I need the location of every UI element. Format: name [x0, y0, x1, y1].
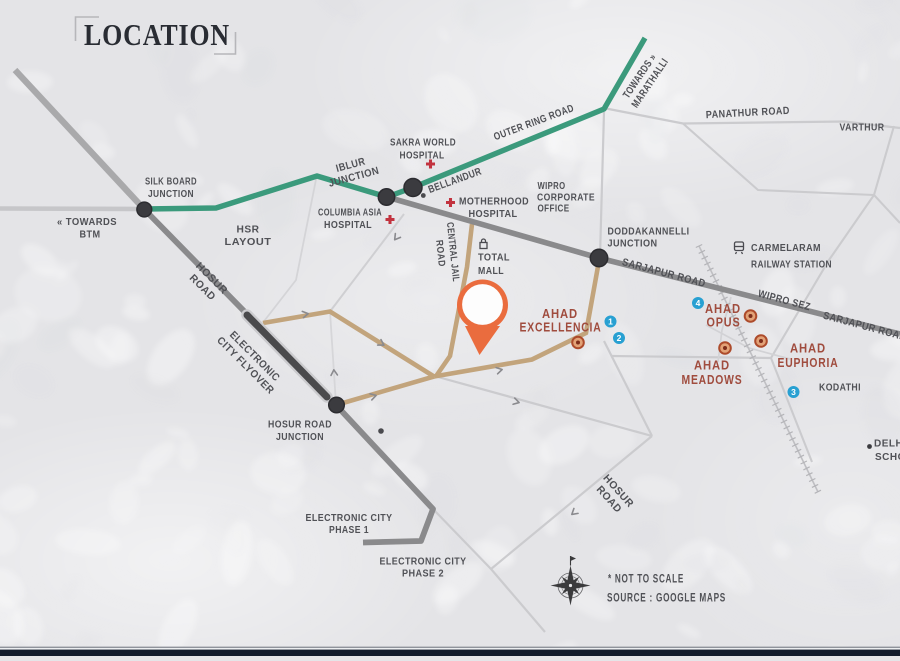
svg-text:JUNCTION: JUNCTION	[608, 238, 658, 250]
svg-text:1: 1	[608, 317, 613, 327]
svg-text:MEADOWS: MEADOWS	[682, 372, 743, 387]
svg-text:HSR: HSR	[237, 224, 260, 236]
svg-text:MALL: MALL	[478, 265, 504, 277]
svg-text:EUPHORIA: EUPHORIA	[778, 355, 839, 370]
svg-text:SAKRA WORLD: SAKRA WORLD	[390, 137, 456, 149]
svg-text:OPUS: OPUS	[707, 315, 741, 330]
svg-text:4: 4	[696, 298, 701, 308]
svg-text:3: 3	[791, 387, 796, 397]
svg-text:HOSUR ROAD: HOSUR ROAD	[268, 419, 332, 431]
svg-text:PHASE 1: PHASE 1	[329, 524, 369, 536]
svg-text:* NOT TO SCALE: * NOT TO SCALE	[608, 574, 684, 586]
svg-text:CARMELARAM: CARMELARAM	[751, 242, 821, 254]
svg-text:JUNCTION: JUNCTION	[276, 431, 324, 443]
svg-text:DELHI P: DELHI P	[874, 439, 900, 450]
svg-text:HOSPITAL: HOSPITAL	[469, 208, 518, 220]
svg-text:PHASE 2: PHASE 2	[402, 568, 444, 580]
svg-text:HOSPITAL: HOSPITAL	[324, 219, 372, 231]
svg-text:SOURCE : GOOGLE MAPS: SOURCE : GOOGLE MAPS	[607, 593, 726, 605]
svg-text:AHAD: AHAD	[694, 358, 730, 373]
svg-text:OFFICE: OFFICE	[538, 203, 570, 215]
svg-text:JUNCTION: JUNCTION	[148, 188, 194, 200]
svg-text:2: 2	[617, 333, 622, 343]
svg-text:KODATHI: KODATHI	[819, 382, 861, 394]
svg-text:WIPRO: WIPRO	[538, 180, 566, 192]
svg-text:MOTHERHOOD: MOTHERHOOD	[459, 196, 529, 208]
svg-text:RAILWAY STATION: RAILWAY STATION	[751, 259, 832, 271]
svg-text:AHAD: AHAD	[790, 341, 826, 356]
svg-text:HOSPITAL: HOSPITAL	[400, 150, 445, 162]
svg-text:CORPORATE: CORPORATE	[537, 191, 595, 203]
svg-text:ELECTRONIC CITY: ELECTRONIC CITY	[306, 512, 393, 524]
svg-text:COLUMBIA ASIA: COLUMBIA ASIA	[318, 207, 382, 219]
svg-text:ELECTRONIC CITY: ELECTRONIC CITY	[380, 556, 467, 568]
svg-text:DODDAKANNELLI: DODDAKANNELLI	[608, 226, 690, 238]
svg-text:LAYOUT: LAYOUT	[225, 236, 272, 248]
svg-text:SCHOOL: SCHOOL	[875, 452, 900, 463]
svg-text:SILK BOARD: SILK BOARD	[145, 176, 197, 188]
svg-text:VARTHUR: VARTHUR	[840, 122, 885, 134]
svg-text:TOTAL: TOTAL	[478, 252, 510, 264]
svg-text:EXCELLENCIA: EXCELLENCIA	[520, 320, 602, 335]
svg-text:LOCATION: LOCATION	[84, 17, 230, 52]
svg-text:BTM: BTM	[80, 229, 101, 241]
svg-text:« TOWARDS: « TOWARDS	[57, 216, 117, 228]
